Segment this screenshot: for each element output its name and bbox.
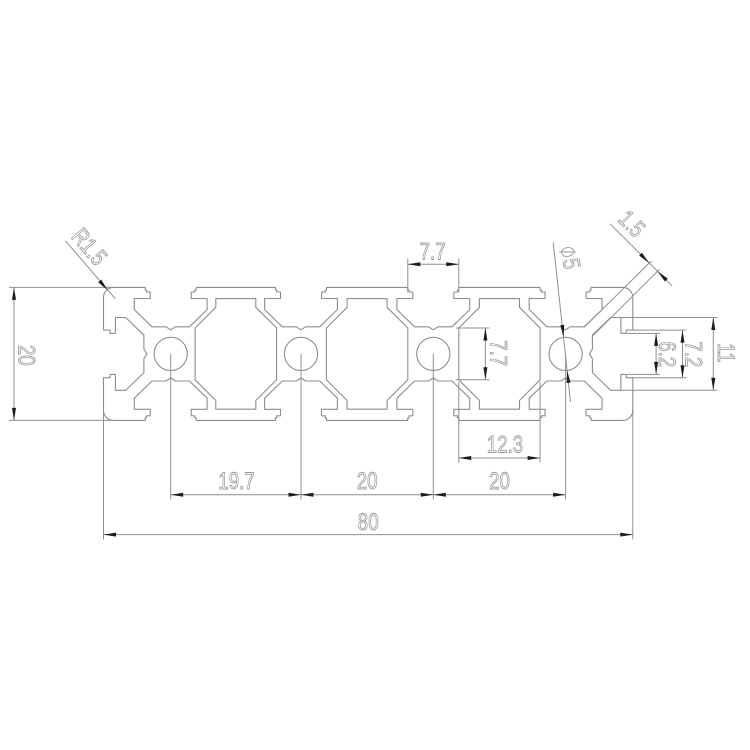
svg-text:20: 20 xyxy=(357,468,378,495)
svg-text:7.2: 7.2 xyxy=(680,341,707,367)
svg-text:19.7: 19.7 xyxy=(218,468,254,495)
svg-text:12.3: 12.3 xyxy=(487,431,523,458)
svg-text:80: 80 xyxy=(358,509,379,536)
svg-text:11: 11 xyxy=(712,343,739,362)
svg-text:7.7: 7.7 xyxy=(485,340,512,366)
svg-text:7.7: 7.7 xyxy=(420,238,446,265)
svg-text:20: 20 xyxy=(13,345,40,366)
svg-text:6.2: 6.2 xyxy=(653,341,680,367)
svg-text:20: 20 xyxy=(489,468,510,495)
